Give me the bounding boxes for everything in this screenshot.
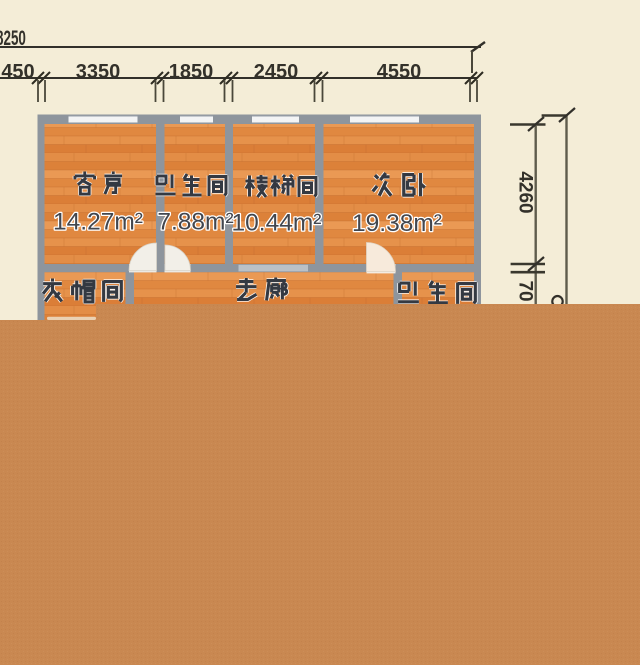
svg-text:8250: 8250 xyxy=(0,26,26,50)
svg-text:450: 450 xyxy=(1,61,34,83)
svg-text:4550: 4550 xyxy=(377,61,422,83)
svg-text:10.44m²: 10.44m² xyxy=(232,210,322,237)
svg-text:3350: 3350 xyxy=(76,61,121,83)
svg-text:2450: 2450 xyxy=(254,61,299,83)
svg-text:4260: 4260 xyxy=(515,171,536,213)
svg-text:14.27m²: 14.27m² xyxy=(53,209,143,236)
svg-text:70: 70 xyxy=(515,280,536,301)
svg-text:7.88m²: 7.88m² xyxy=(157,209,233,236)
svg-text:1850: 1850 xyxy=(169,61,214,83)
svg-text:19.38m²: 19.38m² xyxy=(352,210,442,237)
